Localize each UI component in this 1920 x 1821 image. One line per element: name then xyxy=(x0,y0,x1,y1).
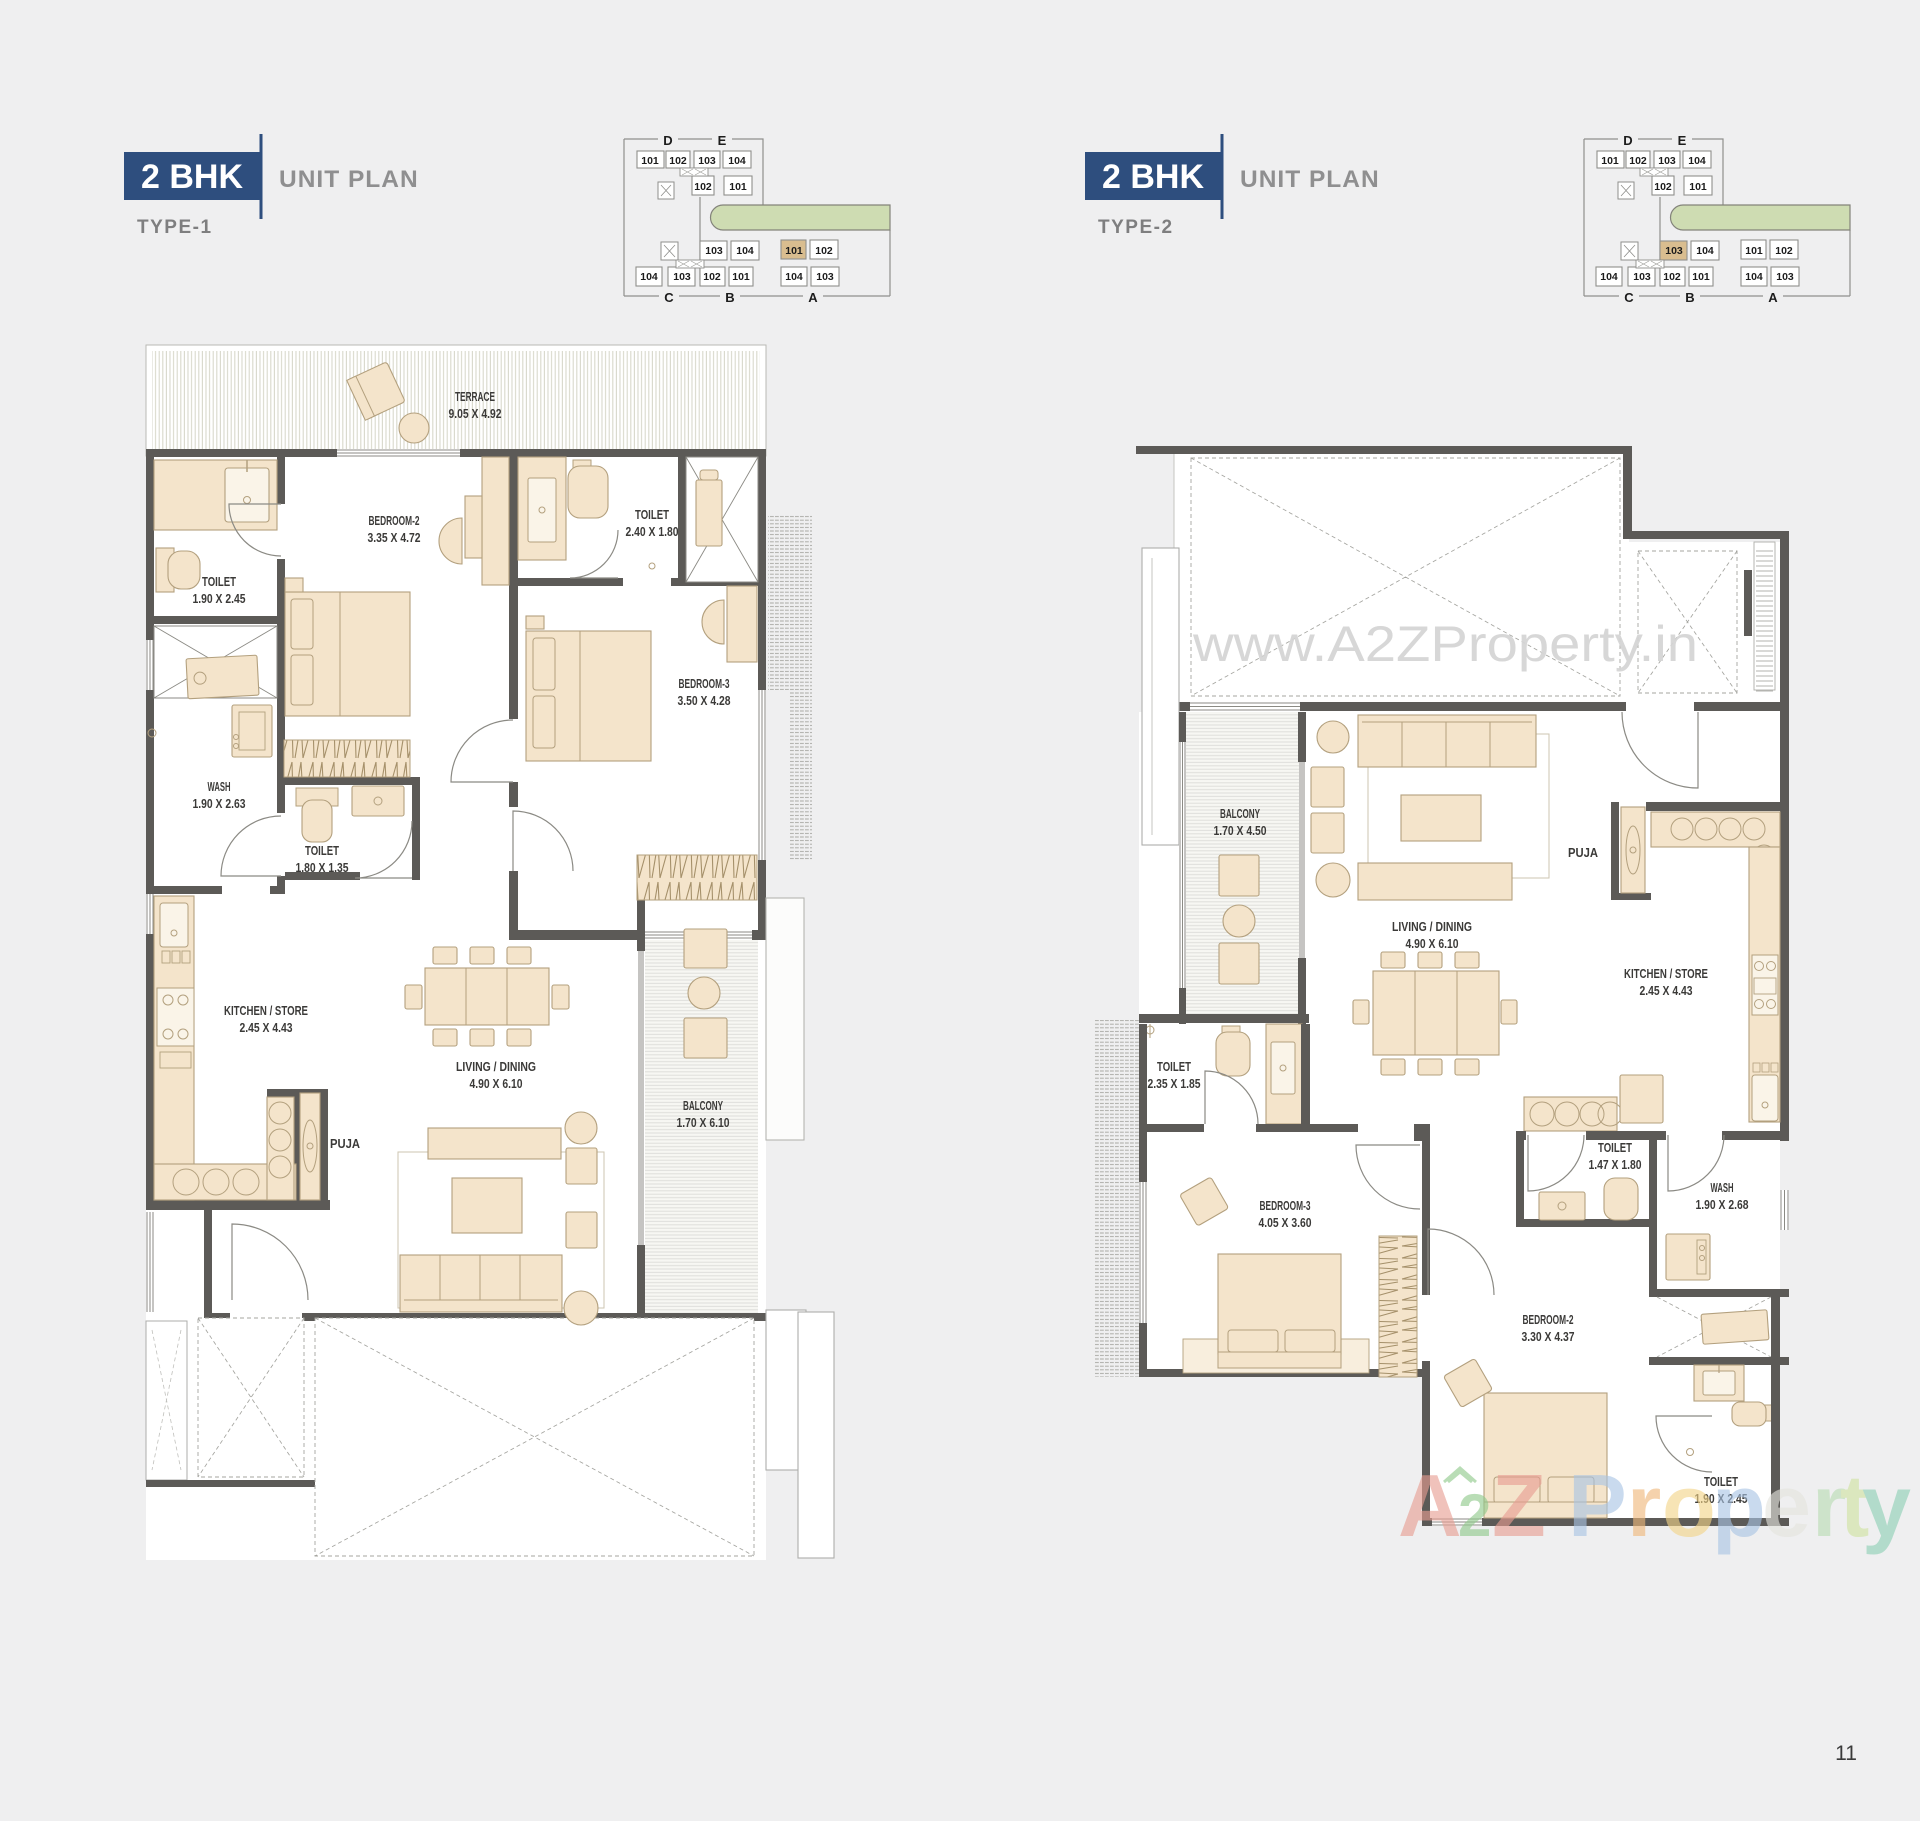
svg-text:WASH: WASH xyxy=(208,779,231,794)
svg-text:102: 102 xyxy=(1629,155,1647,167)
svg-text:2.45 X 4.43: 2.45 X 4.43 xyxy=(1640,983,1693,998)
svg-text:102: 102 xyxy=(669,155,687,167)
svg-text:104: 104 xyxy=(1600,271,1618,283)
svg-text:3.50 X 4.28: 3.50 X 4.28 xyxy=(678,693,731,708)
svg-text:C: C xyxy=(1624,290,1634,305)
svg-text:C: C xyxy=(664,290,674,305)
svg-text:101: 101 xyxy=(641,155,659,167)
svg-text:104: 104 xyxy=(1688,155,1706,167)
svg-text:101: 101 xyxy=(1689,181,1707,193)
svg-text:PUJA: PUJA xyxy=(1568,845,1599,860)
svg-text:4.90 X 6.10: 4.90 X 6.10 xyxy=(1406,936,1459,951)
svg-text:BEDROOM-3: BEDROOM-3 xyxy=(1260,1198,1311,1213)
svg-text:101: 101 xyxy=(732,271,750,283)
svg-text:P: P xyxy=(1568,1456,1627,1555)
svg-text:1.70 X 4.50: 1.70 X 4.50 xyxy=(1214,823,1267,838)
svg-text:BALCONY: BALCONY xyxy=(1220,806,1260,821)
svg-text:103: 103 xyxy=(673,271,691,283)
svg-text:102: 102 xyxy=(694,181,712,193)
svg-text:3.30 X 4.37: 3.30 X 4.37 xyxy=(1522,1329,1575,1344)
svg-text:103: 103 xyxy=(698,155,716,167)
svg-text:101: 101 xyxy=(785,245,803,257)
svg-text:102: 102 xyxy=(1654,181,1672,193)
svg-text:102: 102 xyxy=(1663,271,1681,283)
svg-text:A: A xyxy=(808,290,818,305)
svg-text:4.90 X 6.10: 4.90 X 6.10 xyxy=(470,1076,523,1091)
svg-text:y: y xyxy=(1862,1456,1911,1555)
svg-text:UNIT PLAN: UNIT PLAN xyxy=(1240,166,1380,193)
svg-text:101: 101 xyxy=(729,181,747,193)
svg-text:KITCHEN / STORE: KITCHEN / STORE xyxy=(224,1003,308,1018)
svg-text:104: 104 xyxy=(728,155,746,167)
svg-text:TOILET: TOILET xyxy=(202,574,236,589)
svg-text:p: p xyxy=(1712,1456,1766,1555)
svg-text:104: 104 xyxy=(736,245,754,257)
svg-text:E: E xyxy=(1678,133,1687,148)
svg-text:LIVING / DINING: LIVING / DINING xyxy=(1392,919,1472,934)
svg-text:1.90 X 2.45: 1.90 X 2.45 xyxy=(193,591,246,606)
svg-text:e: e xyxy=(1762,1456,1811,1555)
svg-text:BEDROOM-2: BEDROOM-2 xyxy=(1523,1312,1574,1327)
svg-text:104: 104 xyxy=(640,271,658,283)
svg-text:104: 104 xyxy=(785,271,803,283)
svg-text:E: E xyxy=(718,133,727,148)
svg-text:1.47 X 1.80: 1.47 X 1.80 xyxy=(1589,1157,1642,1172)
svg-text:UNIT PLAN: UNIT PLAN xyxy=(279,166,419,193)
svg-text:1.90 X 2.68: 1.90 X 2.68 xyxy=(1696,1197,1749,1212)
svg-text:TOILET: TOILET xyxy=(1598,1140,1632,1155)
svg-text:2 BHK: 2 BHK xyxy=(1102,158,1204,196)
svg-text:103: 103 xyxy=(1633,271,1651,283)
svg-text:B: B xyxy=(1685,290,1694,305)
svg-text:4.05 X 3.60: 4.05 X 3.60 xyxy=(1259,1215,1312,1230)
svg-text:A: A xyxy=(1768,290,1778,305)
svg-text:LIVING / DINING: LIVING / DINING xyxy=(456,1059,536,1074)
svg-text:9.05 X 4.92: 9.05 X 4.92 xyxy=(449,406,502,421)
svg-text:101: 101 xyxy=(1601,155,1619,167)
svg-text:102: 102 xyxy=(703,271,721,283)
svg-text:2.45 X 4.43: 2.45 X 4.43 xyxy=(240,1020,293,1035)
svg-text:A: A xyxy=(1398,1456,1462,1555)
svg-text:11: 11 xyxy=(1835,1742,1857,1765)
svg-text:1.70 X 6.10: 1.70 X 6.10 xyxy=(677,1115,730,1130)
svg-text:B: B xyxy=(725,290,734,305)
svg-text:2 BHK: 2 BHK xyxy=(141,158,243,196)
svg-text:D: D xyxy=(663,133,672,148)
svg-text:WASH: WASH xyxy=(1711,1180,1734,1195)
svg-text:101: 101 xyxy=(1692,271,1710,283)
svg-text:1.80 X 1.35: 1.80 X 1.35 xyxy=(296,860,349,875)
svg-text:BEDROOM-2: BEDROOM-2 xyxy=(369,513,420,528)
svg-text:104: 104 xyxy=(1696,245,1714,257)
svg-text:TERRACE: TERRACE xyxy=(455,389,495,404)
svg-text:TOILET: TOILET xyxy=(305,843,339,858)
svg-text:www.A2ZProperty.in: www.A2ZProperty.in xyxy=(1192,616,1698,672)
svg-text:o: o xyxy=(1662,1456,1716,1555)
svg-text:102: 102 xyxy=(815,245,833,257)
svg-text:TOILET: TOILET xyxy=(635,507,669,522)
svg-text:103: 103 xyxy=(1665,245,1683,257)
svg-text:r: r xyxy=(1627,1456,1661,1555)
svg-text:101: 101 xyxy=(1745,245,1763,257)
svg-text:103: 103 xyxy=(1658,155,1676,167)
svg-text:BEDROOM-3: BEDROOM-3 xyxy=(679,676,730,691)
svg-text:BALCONY: BALCONY xyxy=(683,1098,723,1113)
svg-text:104: 104 xyxy=(1745,271,1763,283)
svg-text:102: 102 xyxy=(1775,245,1793,257)
svg-text:2.35 X 1.85: 2.35 X 1.85 xyxy=(1148,1076,1201,1091)
svg-text:TYPE-1: TYPE-1 xyxy=(137,217,213,238)
svg-text:TYPE-2: TYPE-2 xyxy=(1098,217,1174,238)
svg-text:1.90 X 2.63: 1.90 X 2.63 xyxy=(193,796,246,811)
svg-text:PUJA: PUJA xyxy=(330,1136,361,1151)
svg-text:TOILET: TOILET xyxy=(1157,1059,1191,1074)
svg-text:103: 103 xyxy=(1776,271,1794,283)
svg-text:KITCHEN / STORE: KITCHEN / STORE xyxy=(1624,966,1708,981)
svg-text:D: D xyxy=(1623,133,1632,148)
svg-text:2: 2 xyxy=(1458,1482,1491,1549)
svg-text:2.40 X 1.80: 2.40 X 1.80 xyxy=(626,524,679,539)
svg-text:103: 103 xyxy=(705,245,723,257)
svg-text:3.35 X 4.72: 3.35 X 4.72 xyxy=(368,530,421,545)
svg-text:Z: Z xyxy=(1492,1456,1546,1555)
svg-text:103: 103 xyxy=(816,271,834,283)
